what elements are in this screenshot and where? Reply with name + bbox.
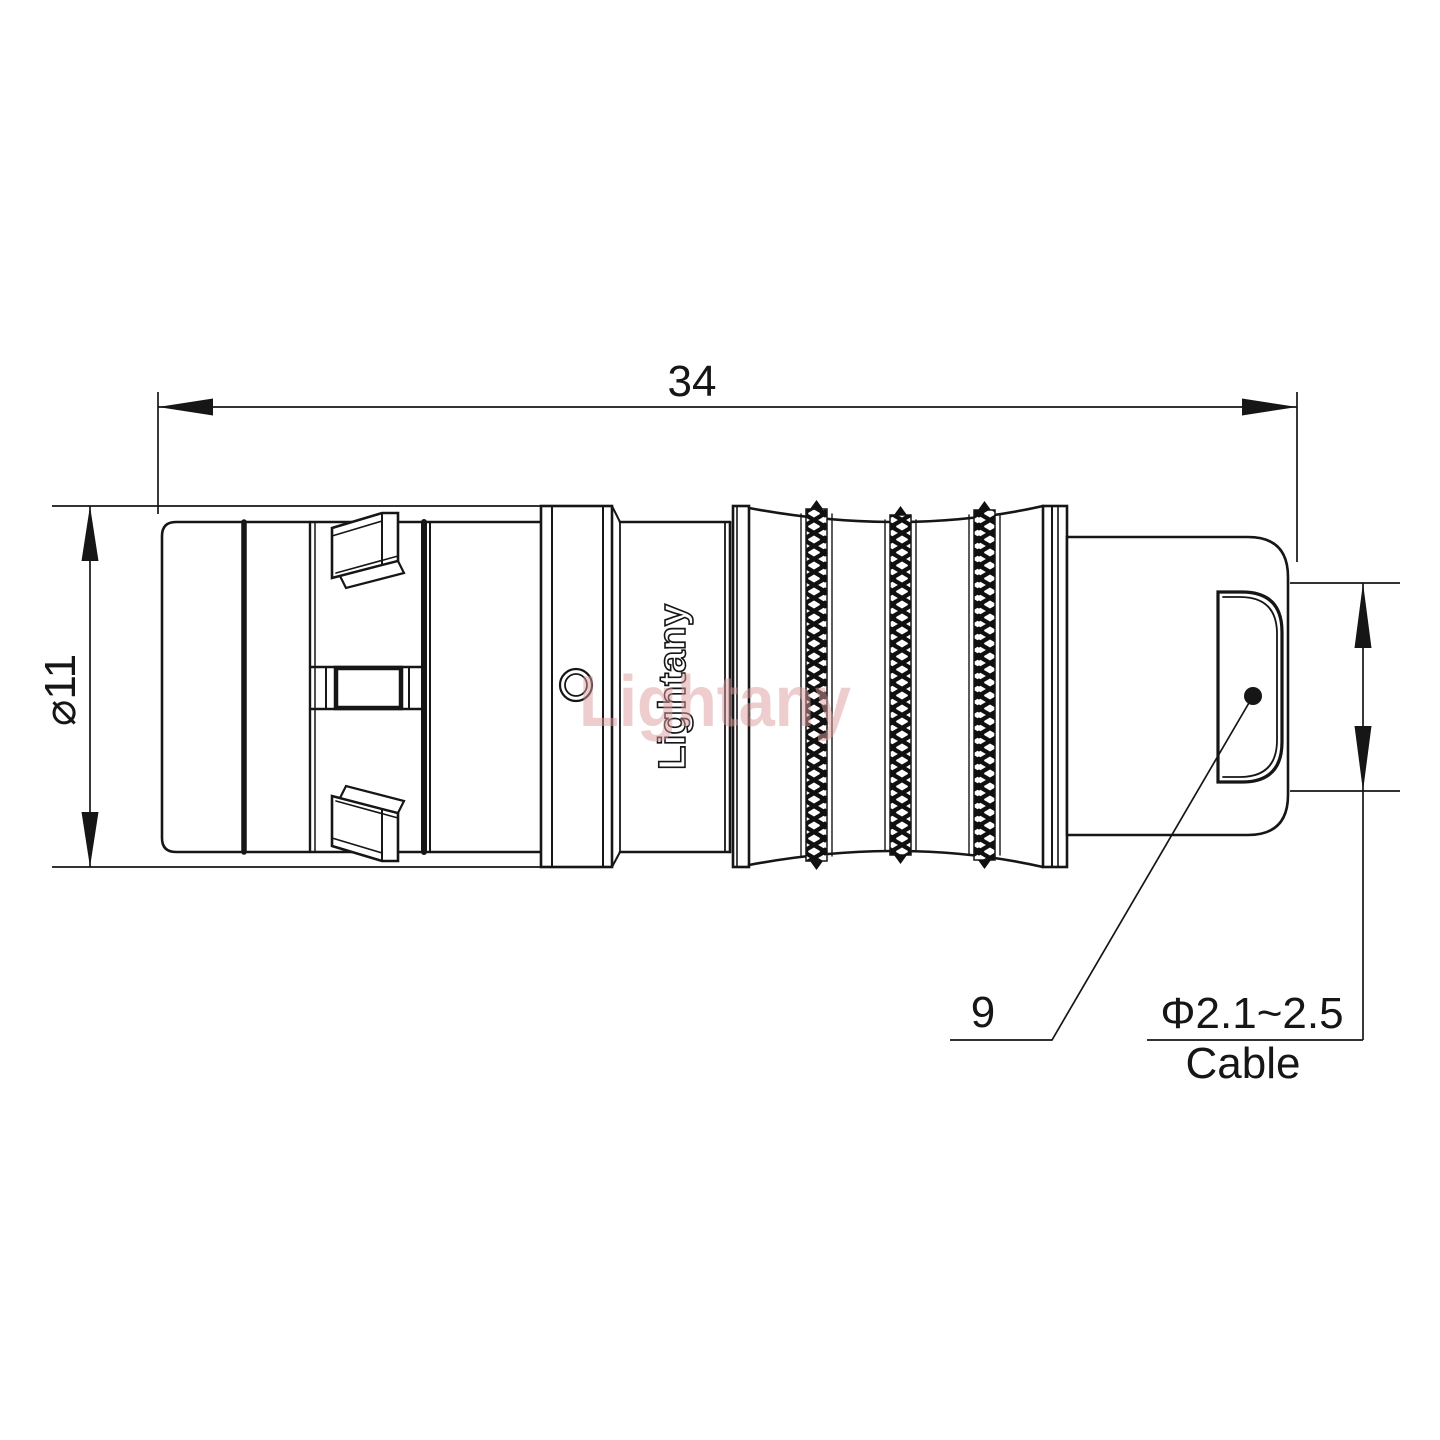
arrowhead-up xyxy=(82,506,99,561)
boot-recess xyxy=(1218,592,1282,782)
arrowhead-left xyxy=(158,399,213,416)
brand-watermark: Lightany xyxy=(579,662,851,742)
connector-technical-drawing: ⌀11 34 Φ2.1~2.5 Cable 9 Lighta xyxy=(0,0,1440,1440)
cable-word-label: Cable xyxy=(1186,1039,1301,1088)
arrowhead-down xyxy=(1355,726,1372,791)
drawing-canvas: ⌀11 34 Φ2.1~2.5 Cable 9 Lighta xyxy=(0,0,1440,1440)
overall-length-label: 34 xyxy=(668,357,717,406)
bottom-latch xyxy=(332,786,404,861)
knurl-band xyxy=(890,515,911,855)
top-latch xyxy=(332,513,404,588)
body-diameter-label: ⌀11 xyxy=(36,654,85,726)
arrowhead-down xyxy=(82,812,99,867)
dimension-body-diameter: ⌀11 xyxy=(36,506,541,867)
rear-rim xyxy=(1043,506,1067,867)
arrowhead-up xyxy=(1355,583,1372,648)
cable-diameter-label: Φ2.1~2.5 xyxy=(1160,989,1343,1038)
knurl-band xyxy=(974,510,995,860)
dimension-overall-length: 34 xyxy=(158,357,1297,562)
boot-ref-label: 9 xyxy=(971,988,995,1037)
arrowhead-right xyxy=(1242,399,1297,416)
key-block xyxy=(336,668,401,708)
